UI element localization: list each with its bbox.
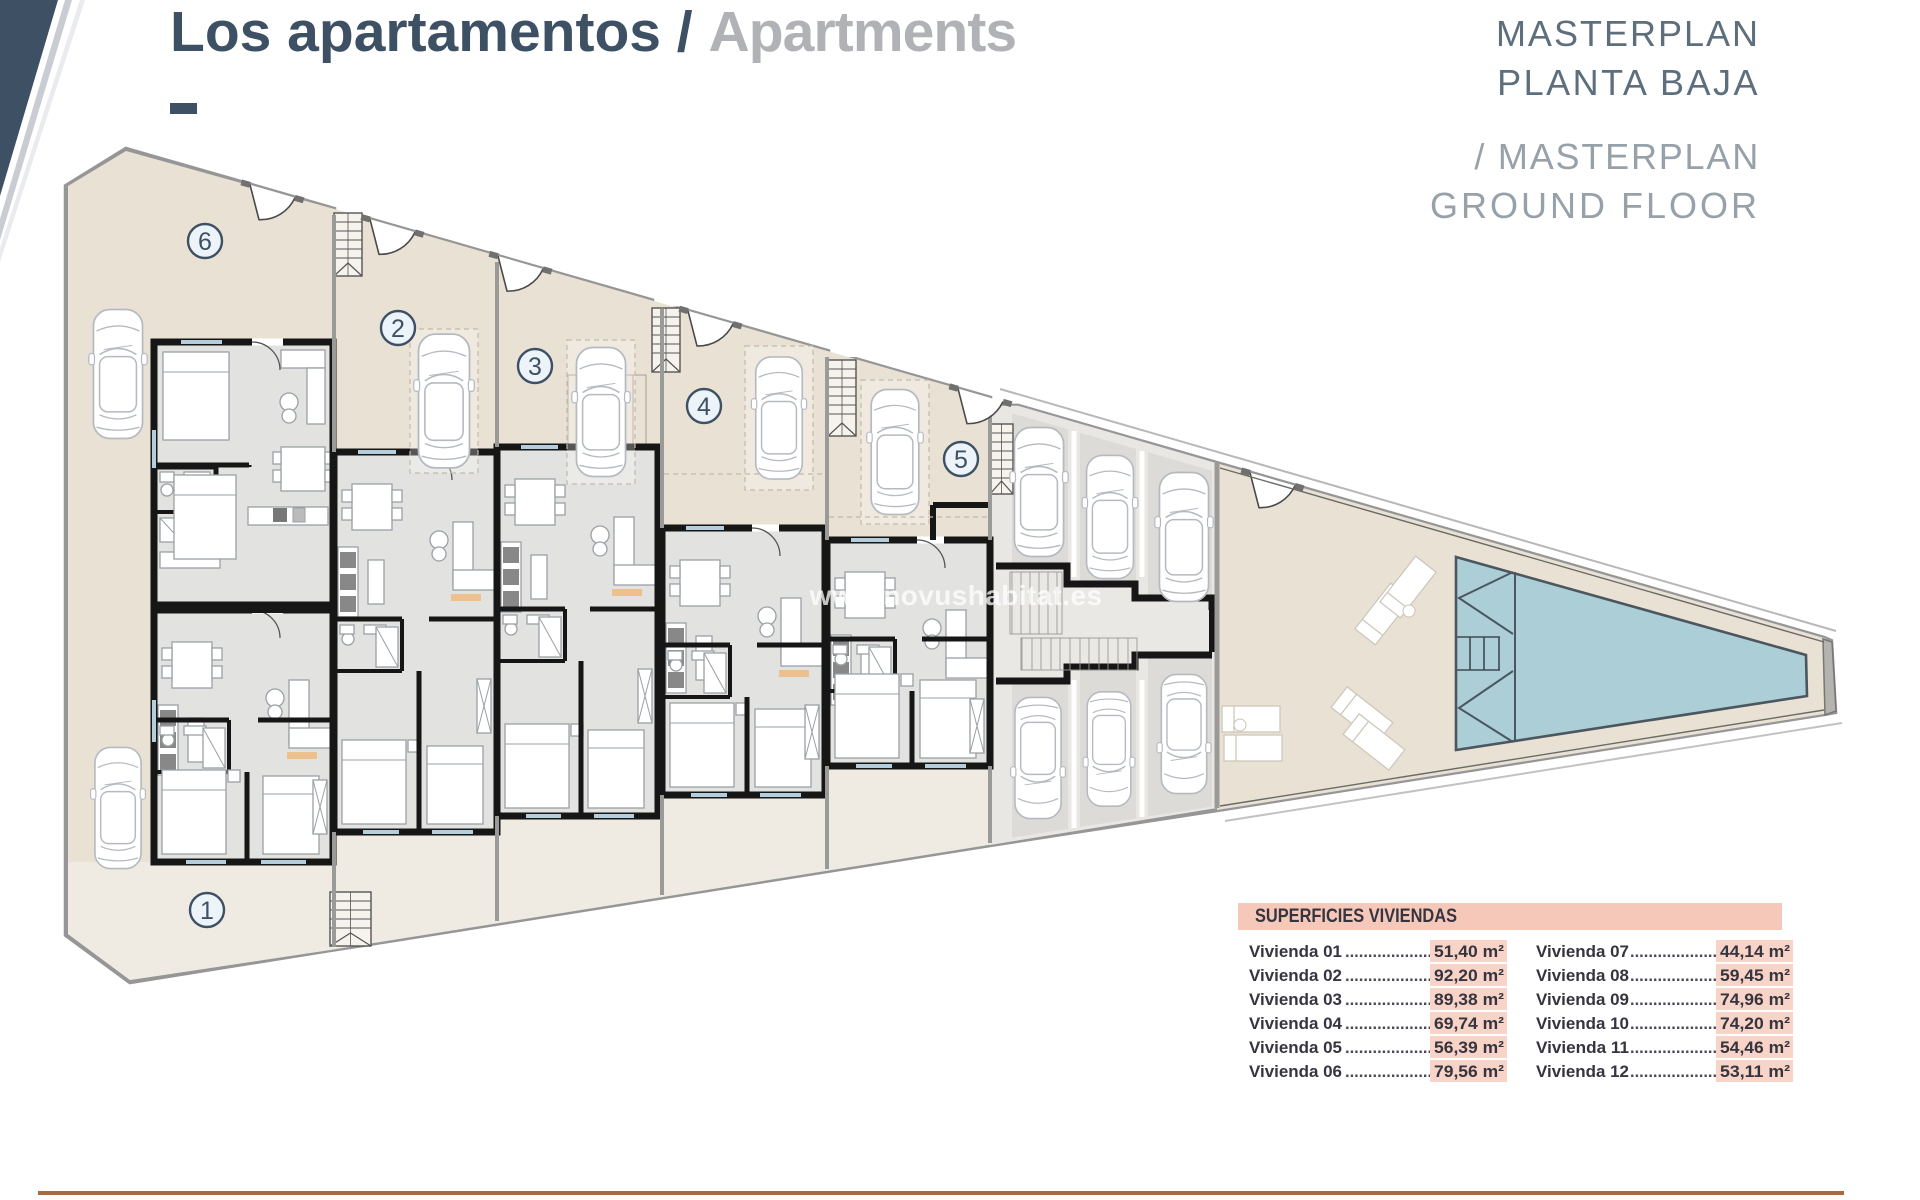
svg-text:3: 3 — [528, 353, 542, 381]
svg-text:www.novushabitat.es: www.novushabitat.es — [809, 580, 1103, 611]
svg-text:1: 1 — [200, 897, 214, 925]
svg-text:56,39 m²: 56,39 m² — [1434, 1039, 1505, 1057]
svg-text:74,20 m²: 74,20 m² — [1720, 1015, 1791, 1033]
svg-text:....................: .................... — [1630, 1063, 1722, 1081]
svg-text:Los apartamentos / Apartments: Los apartamentos / Apartments — [170, 0, 1016, 64]
svg-text:74,96 m²: 74,96 m² — [1720, 991, 1791, 1009]
svg-text:2: 2 — [391, 315, 405, 343]
svg-text:Vivienda 04: Vivienda 04 — [1249, 1015, 1343, 1033]
svg-text:Vivienda 09: Vivienda 09 — [1536, 991, 1629, 1009]
svg-text:69,74 m²: 69,74 m² — [1434, 1015, 1505, 1033]
svg-text:Vivienda 11: Vivienda 11 — [1536, 1039, 1629, 1057]
svg-text:54,46 m²: 54,46 m² — [1720, 1039, 1791, 1057]
svg-text:51,40 m²: 51,40 m² — [1434, 943, 1505, 961]
svg-text:....................: .................... — [1345, 967, 1437, 985]
svg-text:MASTERPLAN: MASTERPLAN — [1496, 13, 1760, 54]
svg-text:Vivienda 05: Vivienda 05 — [1249, 1039, 1342, 1057]
svg-text:....................: .................... — [1345, 943, 1437, 961]
svg-text:/ MASTERPLAN: / MASTERPLAN — [1474, 136, 1760, 177]
svg-text:89,38 m²: 89,38 m² — [1434, 991, 1505, 1009]
svg-text:GROUND FLOOR: GROUND FLOOR — [1430, 185, 1760, 226]
svg-text:Vivienda 12: Vivienda 12 — [1536, 1063, 1629, 1081]
svg-text:....................: .................... — [1345, 991, 1437, 1009]
svg-text:....................: .................... — [1630, 943, 1722, 961]
svg-text:6: 6 — [198, 228, 212, 256]
svg-text:92,20 m²: 92,20 m² — [1434, 967, 1505, 985]
svg-text:Vivienda 07: Vivienda 07 — [1536, 943, 1629, 961]
svg-text:....................: .................... — [1345, 1063, 1437, 1081]
svg-text:Vivienda 02: Vivienda 02 — [1249, 967, 1342, 985]
svg-text:44,14 m²: 44,14 m² — [1720, 943, 1791, 961]
svg-text:Vivienda 10: Vivienda 10 — [1536, 1015, 1629, 1033]
svg-text:5: 5 — [954, 446, 968, 474]
svg-text:59,45 m²: 59,45 m² — [1720, 967, 1791, 985]
svg-text:79,56 m²: 79,56 m² — [1434, 1063, 1505, 1081]
svg-text:....................: .................... — [1630, 1039, 1722, 1057]
svg-text:Vivienda 01: Vivienda 01 — [1249, 943, 1342, 961]
svg-text:PLANTA BAJA: PLANTA BAJA — [1497, 62, 1760, 103]
svg-text:....................: .................... — [1630, 967, 1722, 985]
svg-text:SUPERFICIES VIVIENDAS: SUPERFICIES VIVIENDAS — [1255, 906, 1457, 927]
svg-text:Vivienda 03: Vivienda 03 — [1249, 991, 1342, 1009]
svg-text:4: 4 — [697, 393, 711, 421]
svg-text:....................: .................... — [1630, 991, 1722, 1009]
svg-text:53,11 m²: 53,11 m² — [1720, 1063, 1791, 1081]
svg-text:Vivienda 06: Vivienda 06 — [1249, 1063, 1342, 1081]
svg-text:Vivienda 08: Vivienda 08 — [1536, 967, 1629, 985]
svg-text:....................: .................... — [1345, 1015, 1437, 1033]
svg-text:....................: .................... — [1345, 1039, 1437, 1057]
svg-text:....................: .................... — [1630, 1015, 1722, 1033]
